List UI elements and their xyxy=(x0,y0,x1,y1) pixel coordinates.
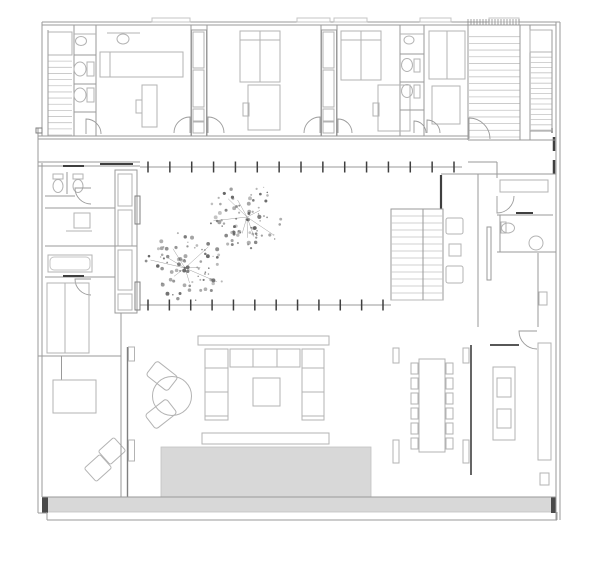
bath-2-tank-2 xyxy=(414,85,420,98)
wardrobe-2-seg-2 xyxy=(323,70,334,107)
courtyard-tree-1-foliage-dot xyxy=(212,256,213,257)
wardrobe-2-seg-1 xyxy=(323,32,334,68)
courtyard-tree-2-foliage-dot xyxy=(258,207,260,209)
courtyard-tree-1-foliage-dot xyxy=(204,253,207,256)
courtyard-tree-2-foliage-dot xyxy=(219,203,222,206)
stair-main-treads xyxy=(391,216,443,300)
courtyard-tree-1-foliage-dot xyxy=(172,294,174,296)
courtyard-tree-1-foliage-dot xyxy=(206,254,210,258)
dining-chair-r1 xyxy=(446,363,453,374)
sofa-right xyxy=(302,349,324,420)
courtyard-tree-1-foliage-dot xyxy=(183,283,187,287)
courtyard-tree-2-foliage-dot xyxy=(261,235,263,237)
door-leaf-1 xyxy=(129,347,135,361)
island-sink xyxy=(497,378,511,397)
bath-nw-door xyxy=(86,119,101,134)
courtyard-tree-1-foliage-dot xyxy=(217,253,220,256)
courtyard-tree-1-foliage-dot xyxy=(148,255,151,258)
lw-tub xyxy=(48,255,92,272)
courtyard-tree-2-foliage-dot xyxy=(239,232,241,234)
lw-bath-door xyxy=(75,188,91,204)
courtyard-tree-2-foliage-dot xyxy=(259,220,261,222)
east-shelf xyxy=(487,227,491,280)
terrace-band xyxy=(47,497,552,512)
courtyard-tree-1-foliage-dot xyxy=(188,284,191,287)
courtyard-tree-1-foliage-dot xyxy=(221,280,223,282)
courtyard-tree-2-foliage-dot xyxy=(247,243,249,245)
dining-chair-l2 xyxy=(411,378,418,389)
courtyard-tree-2-foliage-dot xyxy=(217,220,221,224)
roof-bump-1 xyxy=(152,18,190,22)
courtyard-tree-1-foliage-dot xyxy=(204,249,206,251)
hall-chair-2 xyxy=(446,266,463,283)
courtyard-tree-2-foliage-dot xyxy=(223,222,225,224)
courtyard-tree-1-foliage-dot xyxy=(174,246,177,249)
lounge-seat-2 xyxy=(84,454,112,481)
courtyard-tree-1-foliage-dot xyxy=(179,270,181,272)
hall-side-table xyxy=(449,244,461,256)
courtyard-tree-2-foliage-dot xyxy=(235,205,238,208)
courtyard-tree-2-foliage-dot xyxy=(229,188,232,191)
courtyard-tree-2-foliage-dot xyxy=(235,218,237,220)
courtyard-tree-2-foliage-dot xyxy=(232,230,235,233)
courtyard-tree-2-branch xyxy=(228,199,247,217)
courtyard-tree-1-foliage-dot xyxy=(161,253,164,256)
deck-boards xyxy=(469,37,520,137)
bath-2-toilet-2 xyxy=(402,85,413,98)
courtyard-tree-1-foliage-dot xyxy=(216,256,219,259)
courtyard-tree-1-foliage-dot xyxy=(177,232,179,234)
courtyard-tree-1 xyxy=(145,232,223,301)
lw-toilet-1 xyxy=(53,180,63,193)
storage-seg-1 xyxy=(118,174,132,206)
courtyard-tree-1-foliage-dot xyxy=(199,289,202,292)
courtyard-tree-1-foliage-dot xyxy=(204,287,208,291)
courtyard-tree-1-foliage-dot xyxy=(160,246,164,250)
storage-seg-2 xyxy=(118,210,132,246)
courtyard-tree-2-foliage-dot xyxy=(218,211,222,215)
room-b-door-left xyxy=(208,117,224,133)
courtyard-tree-2-foliage-dot xyxy=(256,188,258,190)
courtyard-tree-1-foliage-dot xyxy=(198,268,200,270)
suite-sink xyxy=(529,236,543,250)
courtyard-tree-2-foliage-dot xyxy=(211,203,214,206)
courtyard-tree-2-foliage-dot xyxy=(252,199,255,202)
courtyard-tree-1-foliage-dot xyxy=(187,242,188,243)
hall-chair-1 xyxy=(446,218,463,234)
dining-table xyxy=(419,359,445,452)
dining-chair-r4 xyxy=(446,408,453,419)
armchair-2 xyxy=(145,399,177,430)
courtyard-tree-1-foliage-dot xyxy=(188,288,192,292)
courtyard-tree-2-foliage-dot xyxy=(247,210,251,214)
courtyard-tree-2-foliage-dot xyxy=(256,235,257,236)
room-d-desk xyxy=(432,86,460,124)
bath-nw-sink xyxy=(76,37,87,46)
courtyard-tree-2-foliage-dot xyxy=(231,239,234,242)
dining-chair-r2 xyxy=(446,378,453,389)
dining-post-2 xyxy=(463,348,469,363)
wardrobe-1-seg-2 xyxy=(193,70,204,107)
terrace-cap-left xyxy=(42,497,48,513)
courtyard-tree-1-foliage-dot xyxy=(191,281,193,283)
terrace-block xyxy=(161,447,371,497)
courtyard-tree-1-foliage-dot xyxy=(199,279,201,281)
courtyard-tree-1-foliage-dot xyxy=(196,266,198,268)
courtyard-tree-1-foliage-dot xyxy=(184,254,188,258)
courtyard-tree-1-foliage-dot xyxy=(159,239,163,243)
corridor-box xyxy=(539,292,547,305)
courtyard-tree-2-foliage-dot xyxy=(226,242,229,245)
dining-chair-r5 xyxy=(446,423,453,434)
suite-toilet xyxy=(502,223,515,233)
door-leaf-2 xyxy=(129,440,135,461)
floor-plan-page xyxy=(0,0,600,574)
sofa-left xyxy=(205,349,228,420)
stair-ne-treads xyxy=(530,57,552,130)
courtyard-tree-2-foliage-dot xyxy=(214,215,218,219)
courtyard-tree-2-foliage-dot xyxy=(252,211,254,213)
courtyard-tree-2-foliage-dot xyxy=(247,218,250,221)
sofa-back xyxy=(230,349,300,367)
dining-post-3 xyxy=(393,440,399,463)
wall-left-jog xyxy=(36,128,42,133)
courtyard-tree-2-foliage-dot xyxy=(247,202,251,206)
courtyard-tree-1-foliage-dot xyxy=(190,236,194,240)
courtyard-tree-1-foliage-dot xyxy=(175,269,179,273)
courtyard-tree-2-foliage-dot xyxy=(218,197,220,199)
courtyard-tree-1-foliage-dot xyxy=(181,259,184,262)
courtyard-tree-2-foliage-dot xyxy=(232,197,235,200)
courtyard-tree-1-foliage-dot xyxy=(166,262,168,264)
courtyard-tree-1-foliage-dot xyxy=(215,247,219,251)
dining-post-4 xyxy=(463,440,469,463)
deck-door xyxy=(469,118,490,139)
living-east-door xyxy=(519,331,537,349)
courtyard-tree-1-foliage-dot xyxy=(177,258,181,262)
east-counter xyxy=(538,343,551,460)
courtyard-tree-2-foliage-dot xyxy=(266,192,268,194)
roof-bump-3 xyxy=(334,18,367,22)
courtyard-tree-2-foliage-dot xyxy=(238,212,240,214)
courtyard-tree-2-foliage-dot xyxy=(258,213,259,214)
courtyard-tree-1-foliage-dot xyxy=(210,289,213,292)
dining-chair-l4 xyxy=(411,408,418,419)
lw-toilet-2 xyxy=(73,180,83,193)
courtyard-tree-2-foliage-dot xyxy=(225,209,228,212)
wardrobe-2-seg-4 xyxy=(323,122,334,133)
courtyard-tree-1-foliage-dot xyxy=(186,245,188,247)
bath-2-sink xyxy=(404,36,414,44)
courtyard-tree-1-foliage-dot xyxy=(184,235,187,238)
courtyard-tree-2-foliage-dot xyxy=(259,193,262,196)
room-c-door xyxy=(338,119,352,133)
courtyard-tree-2-foliage-dot xyxy=(256,230,258,232)
courtyard-tree-1-foliage-dot xyxy=(201,249,203,251)
courtyard-tree-1-foliage-dot xyxy=(216,263,219,266)
courtyard-tree-2-foliage-dot xyxy=(255,236,257,238)
lw-bed xyxy=(47,283,89,353)
courtyard-tree-1-foliage-dot xyxy=(169,278,173,282)
stair-nw-landing xyxy=(48,32,72,55)
courtyard-tree-1-foliage-dot xyxy=(166,292,170,296)
courtyard-tree-2-foliage-dot xyxy=(248,231,251,234)
courtyard-tree-1-foliage-dot xyxy=(176,297,179,300)
courtyard-tree-2-foliage-dot xyxy=(231,243,234,246)
courtyard-tree-2-foliage-dot xyxy=(250,227,252,229)
bath-nw-toilet-2 xyxy=(74,88,86,102)
dining-chair-l6 xyxy=(411,438,418,449)
lw-bath-tank-2 xyxy=(73,174,83,179)
dining-chair-r3 xyxy=(446,393,453,404)
courtyard-tree-1-foliage-dot xyxy=(172,280,175,283)
courtyard-tree-1-foliage-dot xyxy=(208,267,210,269)
wardrobe-2-seg-3 xyxy=(323,109,334,121)
courtyard-tree-2-foliage-dot xyxy=(248,196,252,200)
courtyard-tree-1-foliage-dot xyxy=(177,262,181,266)
room-c-desk xyxy=(378,85,410,131)
courtyard-tree-2-foliage-dot xyxy=(234,224,237,227)
sofa-console xyxy=(198,336,329,345)
lw-bath-tank-1 xyxy=(53,174,63,179)
courtyard-tree-1-foliage-dot xyxy=(194,247,196,249)
courtyard-tree-1-foliage-dot xyxy=(206,242,210,246)
lounge-seat-1 xyxy=(98,437,126,464)
courtyard-tree-1-foliage-dot xyxy=(179,292,182,295)
courtyard-tree-1-foliage-dot xyxy=(199,260,202,263)
courtyard-tree-1-foliage-dot xyxy=(160,267,164,271)
bath-nw-tank-1 xyxy=(87,62,94,76)
courtyard-tree-1-foliage-dot xyxy=(165,247,169,251)
courtyard-tree-2-foliage-dot xyxy=(278,223,281,226)
courtyard-tree-1-foliage-dot xyxy=(186,265,190,269)
stair-ne-landing xyxy=(530,30,552,52)
courtyard-tree-2-foliage-dot xyxy=(264,200,267,203)
courtyard-tree-2-branch xyxy=(238,200,247,217)
courtyard-tree-2 xyxy=(210,187,282,250)
suite-door xyxy=(497,196,514,213)
courtyard-tree-2-foliage-dot xyxy=(273,234,275,236)
bath-2-tank-1 xyxy=(414,59,420,72)
courtyard-tree-1-foliage-dot xyxy=(157,247,160,250)
wardrobe-1-seg-1 xyxy=(193,32,204,68)
courtyard-tree-1-foliage-dot xyxy=(182,269,186,273)
roof-bump-4 xyxy=(420,18,451,22)
bath-2-toilet-1 xyxy=(402,59,413,72)
courtyard-tree-2-foliage-dot xyxy=(223,192,226,195)
sofa-bench xyxy=(202,433,329,444)
storage-seg-3 xyxy=(118,250,132,290)
room-a-bed xyxy=(100,52,183,77)
courtyard-tree-1-foliage-dot xyxy=(186,270,189,273)
courtyard-tree-2-foliage-dot xyxy=(237,242,239,244)
courtyard-tree-2-foliage-dot xyxy=(238,205,240,207)
wardrobe-1-seg-3 xyxy=(193,109,204,121)
courtyard-tree-1-foliage-dot xyxy=(145,260,148,263)
lw-shower xyxy=(74,213,90,228)
terrace-cap-right xyxy=(551,497,556,513)
courtyard-tree-2-foliage-dot xyxy=(251,233,254,236)
lw-tub-inner xyxy=(50,257,90,270)
courtyard-tree-1-foliage-dot xyxy=(166,255,169,258)
courtyard-tree-2-foliage-dot xyxy=(274,238,275,239)
bath-nw-tank-2 xyxy=(87,88,94,102)
dining-post-1 xyxy=(393,348,399,363)
courtyard-tree-2-foliage-dot xyxy=(236,233,239,236)
courtyard-tree-2-foliage-dot xyxy=(263,215,265,217)
round-table xyxy=(153,377,192,416)
courtyard-tree-1-foliage-dot xyxy=(196,244,199,247)
courtyard-tree-2-foliage-dot xyxy=(224,234,228,238)
roof-bump-2 xyxy=(297,18,330,22)
room-a-desk xyxy=(142,85,157,127)
room-d-door xyxy=(427,120,440,133)
courtyard-tree-2-foliage-dot xyxy=(221,225,222,226)
courtyard-tree-1-foliage-dot xyxy=(197,276,198,277)
courtyard-tree-2-foliage-dot xyxy=(263,187,264,188)
dining-chair-r6 xyxy=(446,438,453,449)
courtyard-tree-1-foliage-dot xyxy=(163,257,165,259)
courtyard-tree-1-foliage-dot xyxy=(204,273,206,275)
courtyard-tree-1-foliage-dot xyxy=(208,273,210,275)
floor-plan-drawing xyxy=(0,0,600,574)
courtyard-tree-2-foliage-dot xyxy=(266,194,269,197)
courtyard-tree-1-foliage-dot xyxy=(203,279,205,281)
courtyard-tree-2-foliage-dot xyxy=(253,226,257,230)
courtyard-tree-2-foliage-dot xyxy=(268,233,271,236)
stair-nw-treads xyxy=(48,61,72,135)
dining-chair-l1 xyxy=(411,363,418,374)
storage-seg-4 xyxy=(118,294,132,310)
room-a-sink xyxy=(117,34,129,44)
suite-counter xyxy=(500,180,548,192)
courtyard-tree-1-foliage-dot xyxy=(205,271,207,273)
courtyard-tree-2-foliage-dot xyxy=(257,215,261,219)
dining-chair-l3 xyxy=(411,393,418,404)
courtyard-tree-2-foliage-dot xyxy=(279,218,282,221)
courtyard-tree-2-foliage-dot xyxy=(250,247,252,249)
room-a-door xyxy=(174,117,190,133)
room-b-desk xyxy=(248,85,280,130)
courtyard-tree-2-branch xyxy=(247,217,273,234)
courtyard-tree-1-foliage-dot xyxy=(211,282,214,285)
courtyard-tree-2-foliage-dot xyxy=(210,222,212,224)
courtyard-tree-1-foliage-dot xyxy=(161,283,165,287)
courtyard-tree-1-foliage-dot xyxy=(156,264,160,268)
east-counter-box xyxy=(540,473,549,485)
lw-daybed xyxy=(53,380,96,413)
courtyard-tree-2-foliage-dot xyxy=(250,194,252,196)
courtyard-tree-1-foliage-dot xyxy=(184,259,186,261)
courtyard-tree-2-foliage-dot xyxy=(255,232,258,235)
courtyard-tree-2-branch xyxy=(213,217,247,221)
wardrobe-1-seg-4 xyxy=(193,122,204,133)
dining-chair-l5 xyxy=(411,423,418,434)
courtyard-tree-1-foliage-dot xyxy=(209,278,212,281)
room-b-door-right xyxy=(304,117,320,133)
island-hob xyxy=(497,409,511,428)
room-a-chair xyxy=(136,100,142,113)
courtyard-tree-2-foliage-dot xyxy=(254,241,258,245)
courtyard-tree-2-foliage-dot xyxy=(266,216,268,218)
bath-nw-toilet-1 xyxy=(74,62,86,76)
courtyard-tree-1-foliage-dot xyxy=(170,270,174,274)
courtyard-tree-1-foliage-dot xyxy=(195,300,196,301)
armchair-1 xyxy=(146,361,178,392)
coffee-table xyxy=(253,378,280,406)
courtyard-tree-1-foliage-dot xyxy=(160,256,161,257)
